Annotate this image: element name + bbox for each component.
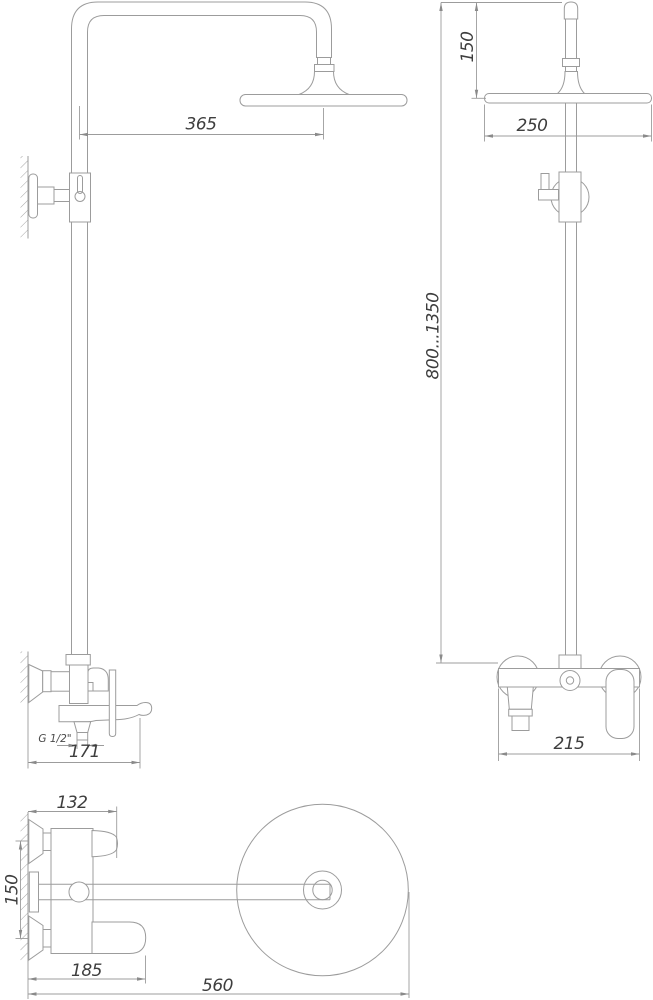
bottom-inlet-escutcheon [29, 916, 43, 960]
side-elevation-view: 365 G 1/2" 171 [21, 2, 408, 769]
dim-label-215: 215 [554, 734, 585, 754]
outlet-ring-front [509, 709, 533, 716]
diverter-knob-stem [541, 174, 549, 191]
mixer-union-nut [43, 671, 51, 692]
lever-handle-plan [92, 831, 118, 857]
dim-label-132: 132 [57, 793, 88, 813]
technical-drawing-canvas: 365 G 1/2" 171 [0, 0, 653, 1000]
dim-label-250: 250 [517, 116, 548, 136]
column-joint-outer [560, 671, 580, 691]
riser-pipe-inner [88, 16, 317, 656]
bath-spout-plan [92, 922, 146, 954]
mixer-body-side [70, 665, 89, 704]
outlet-tip-front [512, 716, 529, 731]
outlet-block-front [507, 687, 533, 709]
bracket-arm-wide [38, 187, 55, 204]
diverter-slider [559, 172, 581, 222]
shower-head-plate [240, 95, 407, 107]
head-cone [299, 72, 349, 95]
dim-label-560: 560 [202, 976, 233, 996]
shower-head-hub-inner [313, 880, 332, 899]
lever-handle-front [606, 670, 634, 739]
mixer-adapter [66, 655, 90, 666]
outlet-thread-tip [77, 733, 88, 741]
head-connector-ring [315, 65, 335, 72]
lever-handle-side [109, 670, 115, 737]
shower-head-outline [237, 804, 409, 976]
mixer-adapter-front [559, 655, 581, 669]
dim-label-185: 185 [71, 961, 102, 981]
riser-pipe-section [69, 882, 89, 902]
dim-head-diameter [485, 105, 652, 142]
cartridge-cap [88, 668, 108, 691]
dim-label-171: 171 [69, 742, 100, 762]
dim-label-height-range: 800...1350 [424, 293, 444, 380]
shower-head-plate-front [485, 94, 652, 104]
top-inlet-escutcheon [29, 820, 43, 864]
head-cone-front [558, 72, 585, 94]
wall-hatch-lower [21, 652, 29, 704]
bracket-arm-narrow [54, 190, 70, 202]
wall-hatch-upper [21, 156, 29, 239]
dim-label-thread: G 1/2" [38, 733, 71, 745]
plan-view: 132 150 185 560 [3, 793, 410, 999]
bracket-plate-plan [29, 872, 38, 912]
diverter-knob [539, 190, 559, 201]
bracket-slider [70, 173, 91, 222]
shower-head-hub-outer [304, 871, 342, 909]
dim-label-365: 365 [186, 115, 217, 135]
dim-label-150-plan: 150 [3, 875, 23, 906]
column-top-cap [564, 2, 577, 19]
bath-spout-side [59, 703, 152, 722]
head-connector-nut [318, 58, 331, 65]
bracket-wall-plate [29, 174, 38, 218]
mixer-escutcheon [29, 665, 43, 703]
bottom-inlet-union [43, 930, 51, 948]
top-inlet-union [43, 833, 51, 851]
mixer-inlet-block [51, 672, 70, 692]
dim-label-150-front: 150 [458, 32, 478, 63]
front-elevation-view: 800...1350 150 250 215 [424, 2, 652, 761]
outlet-taper [74, 722, 91, 733]
column-ring [563, 59, 580, 67]
